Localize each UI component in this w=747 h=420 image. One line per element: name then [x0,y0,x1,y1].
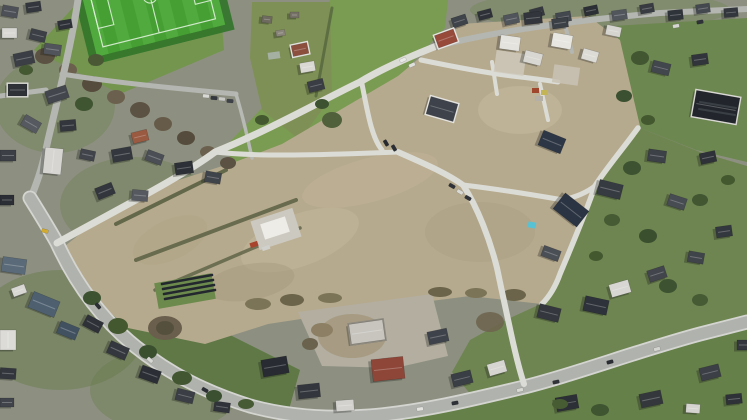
tree [19,65,33,75]
white-building [0,330,16,352]
tree [721,175,735,185]
tree [88,54,104,66]
scrub [280,294,304,306]
tree [552,399,568,409]
tree [692,194,708,206]
tree [302,338,318,350]
tree [604,214,620,226]
tree [139,345,157,359]
new-house [520,11,542,27]
scrub [465,288,487,298]
house [712,225,733,240]
big-bare-tree-core [156,321,174,335]
house-red-roof [368,356,405,383]
meadow-tree [322,112,342,128]
tree [616,90,632,102]
dirt-mound [311,323,333,337]
tree-line-bare [107,90,125,104]
tree [641,115,655,125]
house [0,150,16,163]
pallet-stack [535,96,543,101]
tree-line-bare [177,131,195,145]
aerial-photograph [0,0,747,420]
house [294,383,320,401]
tree [692,294,708,306]
tree [589,251,603,261]
pallet-stack [532,88,539,93]
house [0,195,14,207]
bare-tree [476,312,504,332]
house [0,367,16,381]
tree [83,291,101,305]
parked-car [219,97,226,101]
tree [75,97,93,111]
aerial-photo-figure [0,0,747,420]
tree-line-bare [220,157,236,169]
house [0,398,14,409]
tree [315,99,329,109]
house [683,403,701,415]
car [416,407,423,411]
white-building [40,147,64,177]
parked-car [211,96,218,100]
tree [172,371,192,385]
tree [255,115,269,125]
gravel-pad [552,64,580,85]
scrub [428,287,452,297]
tree [206,390,222,402]
house [128,189,148,203]
scrub [318,293,342,303]
parked-car [203,94,210,98]
pallet-stack [541,90,548,95]
tree-line-bare [154,117,172,131]
house [0,28,17,40]
house [688,53,709,68]
tree [623,161,641,175]
parked-car [227,99,234,103]
dev-road-cross [215,152,398,155]
tree [238,399,254,409]
tree [631,51,649,65]
house [5,83,29,98]
tree [639,229,657,243]
field-tone [478,86,562,134]
tree [108,318,128,334]
house-under-construction [496,34,521,53]
tree-line-bare [130,102,150,118]
house [333,399,355,413]
house-blue-roof [0,256,27,276]
tree [659,279,677,293]
gravel-pad [494,50,527,76]
tree [591,404,609,416]
house [734,340,747,352]
scrub [245,298,271,310]
